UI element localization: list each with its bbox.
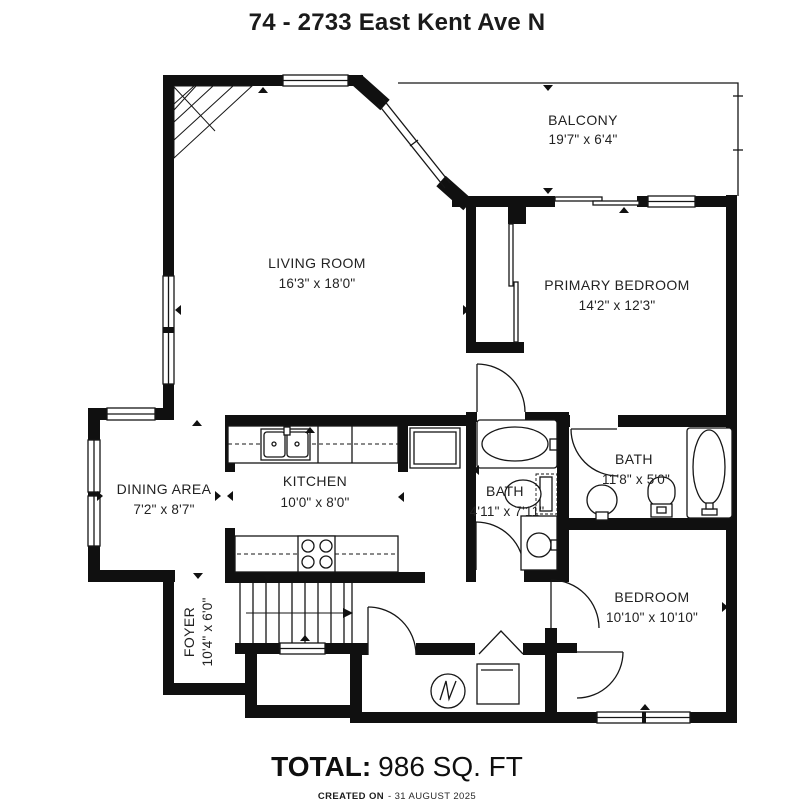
fridge (410, 428, 460, 468)
diagonal-glass-wall (378, 99, 450, 188)
tub-faucet (550, 439, 557, 450)
bedroom-label: BEDROOM (614, 589, 689, 605)
staircase (240, 583, 353, 643)
total-value: 986 SQ. FT (378, 751, 523, 782)
bath-ensuite-label: BATH (615, 451, 653, 467)
bath-ensuite-door-arc (571, 429, 618, 476)
foyer-label: FOYER (181, 607, 197, 657)
laundry-fixtures (431, 664, 519, 708)
sink-pedestal (596, 512, 608, 520)
windows (88, 75, 695, 723)
primary-bedroom-label: PRIMARY BEDROOM (544, 277, 690, 293)
bath-ensuite-dims: 11'8" x 5'0" (602, 472, 670, 487)
bath-main-door-arc (476, 522, 524, 570)
floor-plan-drawing: BALCONY 19'7" x 6'4" LIVING ROOM 16'3" x… (0, 0, 794, 810)
bath-main-label: BATH (486, 483, 524, 499)
primary-bedroom-dims: 14'2" x 12'3" (579, 298, 656, 313)
sink (587, 485, 617, 515)
balcony-label: BALCONY (548, 112, 618, 128)
bedroom-closet-door-arc (577, 652, 623, 698)
bath-main-upper-door-arc (477, 364, 525, 412)
tub-faucet (702, 509, 717, 515)
kitchen-faucet (284, 427, 290, 435)
dining-area-label: DINING AREA (117, 481, 212, 497)
dining-area-dims: 7'2" x 8'7" (133, 502, 194, 517)
total-label: TOTAL: (271, 751, 371, 782)
balcony-dims: 19'7" x 6'4" (549, 132, 618, 147)
corner-hatch (174, 86, 252, 158)
primary-closet-sliding-door (509, 224, 518, 342)
bedroom-door-arc (551, 580, 599, 628)
living-room-label: LIVING ROOM (268, 255, 366, 271)
bath-main-dims: 4'11" x 7'11" (470, 504, 545, 519)
created-on-line: CREATED ON- 31 AUGUST 2025 (0, 791, 794, 802)
sink-faucet (551, 540, 557, 550)
total-area-line: TOTAL:986 SQ. FT (0, 751, 794, 783)
foyer-dims: 10'4" x 6'0" (200, 598, 215, 667)
living-room-dims: 16'3" x 18'0" (279, 276, 356, 291)
created-on-date: - 31 AUGUST 2025 (388, 791, 476, 802)
kitchen-label: KITCHEN (283, 473, 347, 489)
bedroom-dims: 10'10" x 10'10" (606, 610, 698, 625)
floor-plan-page: 74 - 2733 East Kent Ave N (0, 0, 794, 810)
kitchen-dims: 10'0" x 8'0" (281, 495, 350, 510)
folding-door-symbol (479, 631, 523, 654)
balcony-sliding-door (555, 197, 639, 205)
hall-door-arc (368, 607, 416, 655)
created-on-label: CREATED ON (318, 791, 384, 802)
